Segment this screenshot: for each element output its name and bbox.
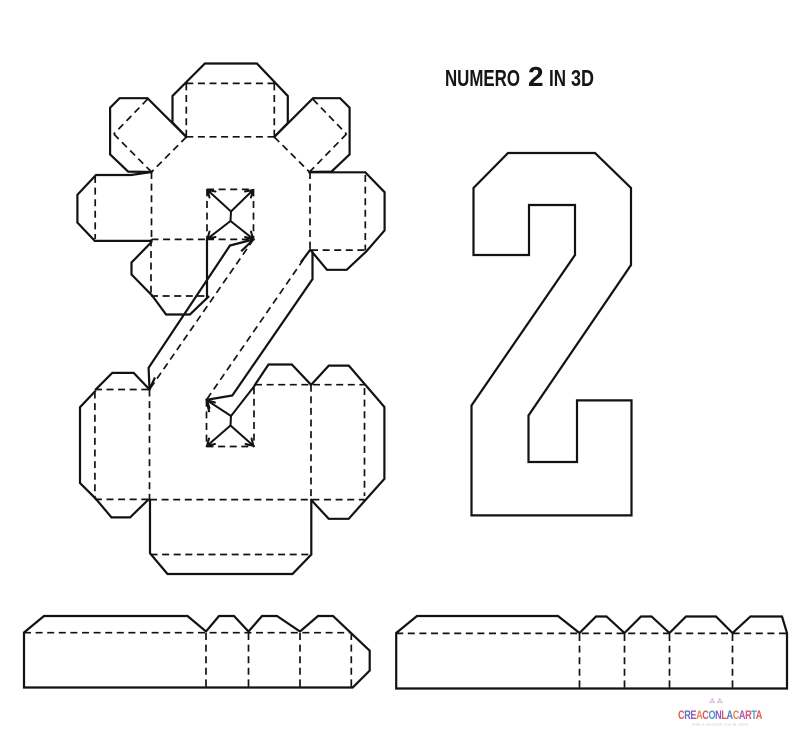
svg-text:IN: IN [549,65,566,91]
svg-text:2: 2 [528,61,544,92]
svg-text:idee e lavoretti con la carta: idee e lavoretti con la carta [692,722,749,727]
svg-text:NUMERO: NUMERO [445,65,520,91]
svg-text:⁂ ⁂: ⁂ ⁂ [709,699,723,705]
svg-text:3D: 3D [571,65,594,91]
svg-text:CREACONLACARTA: CREACONLACARTA [678,710,762,722]
